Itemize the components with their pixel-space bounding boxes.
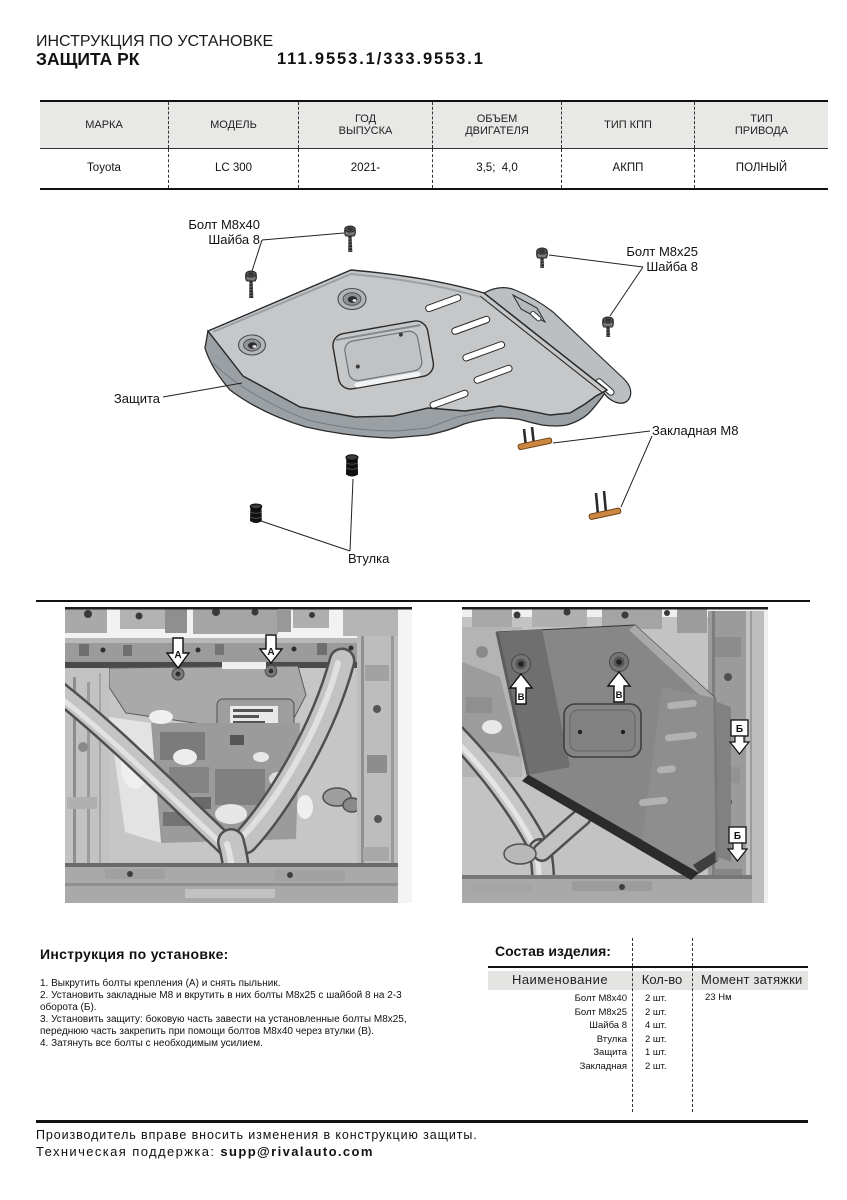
svg-text:Болт М8х40: Болт М8х40 [188, 217, 260, 232]
svg-text:Шайба 8: Шайба 8 [208, 232, 260, 247]
svg-text:Защита: Защита [114, 391, 161, 406]
svg-text:В: В [616, 690, 623, 701]
svg-text:A: A [267, 647, 274, 658]
svg-text:Б: Б [736, 724, 743, 735]
svg-text:Закладная М8: Закладная М8 [652, 423, 738, 438]
svg-text:Б: Б [734, 831, 741, 842]
svg-text:Болт М8х25: Болт М8х25 [626, 244, 698, 259]
svg-text:Шайба 8: Шайба 8 [646, 259, 698, 274]
svg-text:Втулка: Втулка [348, 551, 390, 566]
svg-text:В: В [518, 692, 525, 703]
svg-text:A: A [174, 650, 181, 661]
